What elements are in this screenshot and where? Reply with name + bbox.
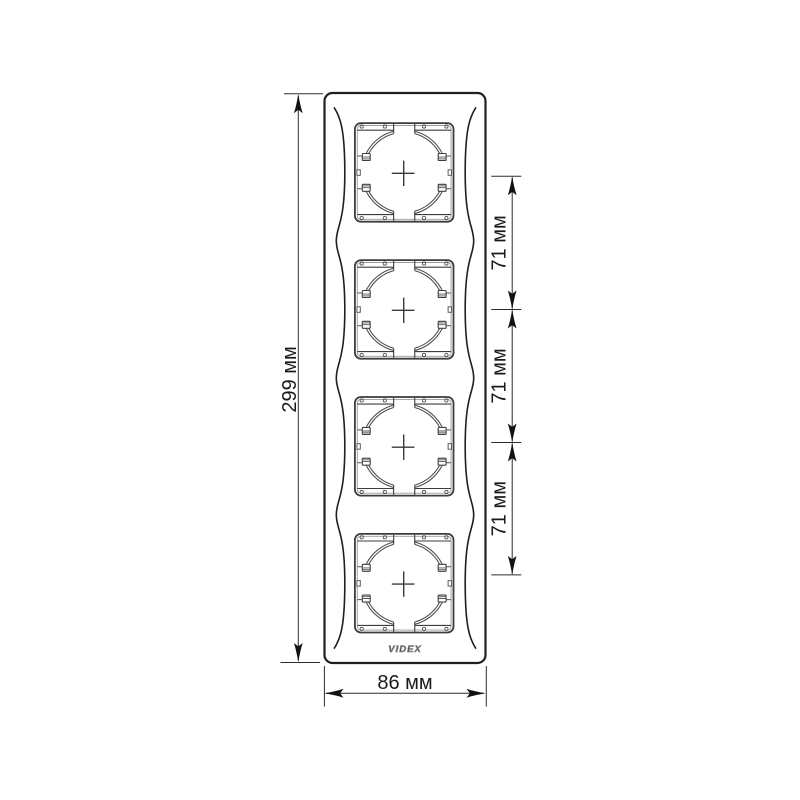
svg-text:86 мм: 86 мм (377, 672, 432, 694)
svg-text:71 мм: 71 мм (489, 348, 511, 403)
svg-text:71 мм: 71 мм (489, 215, 511, 270)
svg-text:VIDEX: VIDEX (388, 644, 422, 655)
svg-text:299 мм: 299 мм (279, 346, 301, 412)
svg-text:71 мм: 71 мм (489, 481, 511, 536)
